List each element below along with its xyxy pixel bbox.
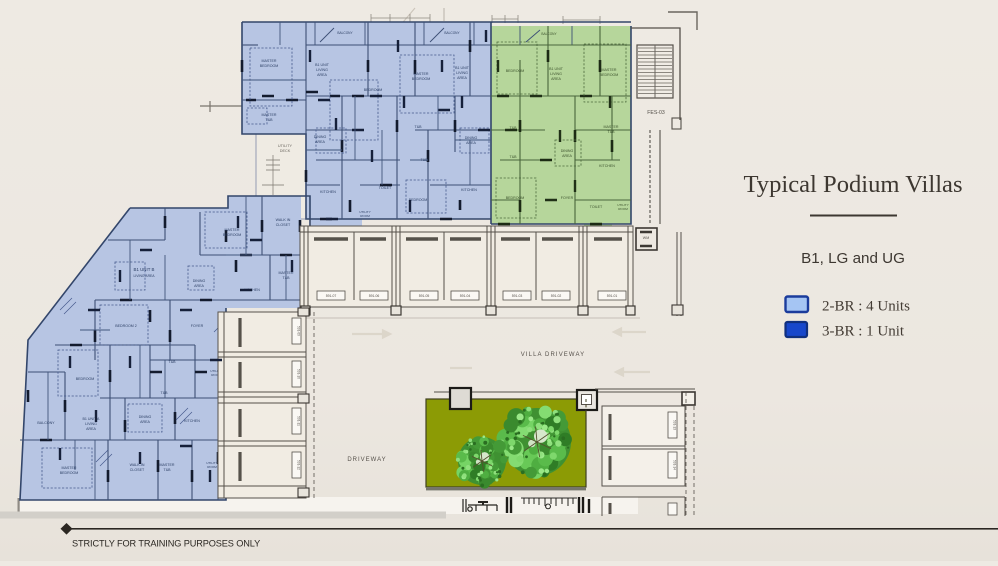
svg-text:2-BR : 4 Units: 2-BR : 4 Units xyxy=(822,299,910,315)
svg-text:591-02: 591-02 xyxy=(551,294,562,298)
svg-text:KITCHEN: KITCHEN xyxy=(184,419,200,423)
svg-text:MASTER: MASTER xyxy=(602,68,617,72)
svg-text:591-11: 591-11 xyxy=(297,416,301,426)
svg-text:MASTER: MASTER xyxy=(160,463,175,467)
svg-text:BEDROOM 2: BEDROOM 2 xyxy=(115,324,137,328)
svg-text:591-09: 591-09 xyxy=(297,326,301,336)
svg-text:VILLA DRIVEWAY: VILLA DRIVEWAY xyxy=(521,352,585,358)
svg-text:BEDROOM: BEDROOM xyxy=(60,471,79,475)
svg-text:TOILET: TOILET xyxy=(379,186,392,190)
svg-text:KITCHEN: KITCHEN xyxy=(461,188,477,192)
svg-text:MASTER: MASTER xyxy=(414,72,429,76)
svg-text:LIVING AREA: LIVING AREA xyxy=(133,274,155,278)
svg-text:591-06: 591-06 xyxy=(369,294,380,298)
svg-text:MASTER: MASTER xyxy=(262,113,277,117)
svg-text:MASTER: MASTER xyxy=(262,59,277,63)
svg-text:BEDROOM: BEDROOM xyxy=(260,64,279,68)
svg-text:B1 UNIT B: B1 UNIT B xyxy=(134,267,155,272)
svg-text:BEDROOM: BEDROOM xyxy=(409,198,428,202)
svg-text:T&B: T&B xyxy=(164,468,172,472)
svg-text:AREA: AREA xyxy=(466,141,476,145)
svg-text:591-01: 591-01 xyxy=(607,294,618,298)
svg-text:KITCHEN: KITCHEN xyxy=(320,190,336,194)
svg-text:LIVING: LIVING xyxy=(456,71,468,75)
svg-text:591-07: 591-07 xyxy=(326,294,337,298)
svg-text:DINING: DINING xyxy=(193,279,206,283)
svg-text:BEDROOM: BEDROOM xyxy=(76,377,95,381)
svg-text:B1 UNIT: B1 UNIT xyxy=(455,66,470,70)
svg-text:BEDROOM: BEDROOM xyxy=(223,233,242,237)
svg-text:ROOM: ROOM xyxy=(618,207,628,211)
svg-text:DINING: DINING xyxy=(314,135,327,139)
svg-text:AREA: AREA xyxy=(315,140,325,144)
svg-text:591-03: 591-03 xyxy=(512,294,523,298)
svg-text:AREA: AREA xyxy=(317,73,327,77)
svg-text:WALK-IN: WALK-IN xyxy=(130,463,145,467)
svg-text:BALCONY: BALCONY xyxy=(541,32,557,36)
svg-text:FOYER: FOYER xyxy=(561,196,574,200)
svg-text:KITCHEN: KITCHEN xyxy=(599,164,615,168)
svg-text:AREA: AREA xyxy=(140,420,150,424)
svg-text:FOYER: FOYER xyxy=(191,324,204,328)
svg-text:CLOSET: CLOSET xyxy=(276,223,291,227)
svg-text:591-10: 591-10 xyxy=(297,369,301,379)
svg-text:DRIVEWAY: DRIVEWAY xyxy=(347,457,386,463)
svg-text:BEDROOM: BEDROOM xyxy=(364,88,383,92)
svg-text:BALCONY: BALCONY xyxy=(37,421,55,425)
svg-text:CLOSET: CLOSET xyxy=(130,468,145,472)
svg-text:LIVING: LIVING xyxy=(316,68,328,72)
svg-text:UTILITY: UTILITY xyxy=(278,144,293,148)
svg-text:MASTER: MASTER xyxy=(225,228,240,232)
svg-text:BEDROOM: BEDROOM xyxy=(600,73,619,77)
svg-text:B1 UNIT A: B1 UNIT A xyxy=(83,417,101,421)
svg-text:AREA: AREA xyxy=(194,284,204,288)
svg-text:LIVING: LIVING xyxy=(550,72,562,76)
svg-text:591-14: 591-14 xyxy=(673,460,677,470)
svg-text:T&B: T&B xyxy=(169,360,177,364)
svg-text:BEDROOM: BEDROOM xyxy=(506,196,525,200)
svg-text:BALCONY: BALCONY xyxy=(337,31,353,35)
svg-text:591-04: 591-04 xyxy=(460,294,471,298)
svg-text:AREA: AREA xyxy=(86,427,96,431)
svg-text:BEDROOM: BEDROOM xyxy=(412,77,431,81)
svg-text:591-05: 591-05 xyxy=(419,294,430,298)
svg-text:B1, LG and UG: B1, LG and UG xyxy=(801,250,905,267)
svg-text:STRICTLY FOR TRAINING PURPOSES: STRICTLY FOR TRAINING PURPOSES ONLY xyxy=(72,539,260,549)
svg-text:WALK IN: WALK IN xyxy=(276,218,291,222)
svg-text:TOILET: TOILET xyxy=(590,205,603,209)
svg-text:AREA: AREA xyxy=(457,76,467,80)
svg-text:591-13: 591-13 xyxy=(673,420,677,430)
svg-text:DECK: DECK xyxy=(280,149,291,153)
svg-text:Typical Podium Villas: Typical Podium Villas xyxy=(743,171,962,198)
svg-text:ROOM: ROOM xyxy=(360,214,370,218)
svg-text:BALCONY: BALCONY xyxy=(444,31,460,35)
svg-text:LIVING: LIVING xyxy=(85,422,97,426)
svg-text:AREA: AREA xyxy=(551,77,561,81)
svg-text:T&B: T&B xyxy=(608,130,616,134)
svg-text:B1 UNIT: B1 UNIT xyxy=(315,63,330,67)
svg-text:DINING: DINING xyxy=(561,149,574,153)
svg-text:FES-03: FES-03 xyxy=(647,110,665,116)
svg-text:MASTER: MASTER xyxy=(604,125,619,129)
svg-text:T&B: T&B xyxy=(266,118,274,122)
svg-text:BEDROOM: BEDROOM xyxy=(506,69,525,73)
svg-text:AREA: AREA xyxy=(562,154,572,158)
svg-text:B1 UNIT: B1 UNIT xyxy=(549,67,564,71)
svg-text:DINING: DINING xyxy=(139,415,152,419)
svg-text:T&B: T&B xyxy=(510,155,518,159)
svg-text:T&B: T&B xyxy=(415,125,423,129)
svg-text:591-12: 591-12 xyxy=(297,460,301,470)
svg-text:ROOM: ROOM xyxy=(207,465,217,469)
svg-text:WM: WM xyxy=(643,236,649,240)
svg-text:DINING: DINING xyxy=(465,136,478,140)
svg-text:T&B: T&B xyxy=(161,391,169,395)
svg-text:3-BR : 1 Unit: 3-BR : 1 Unit xyxy=(822,324,905,340)
